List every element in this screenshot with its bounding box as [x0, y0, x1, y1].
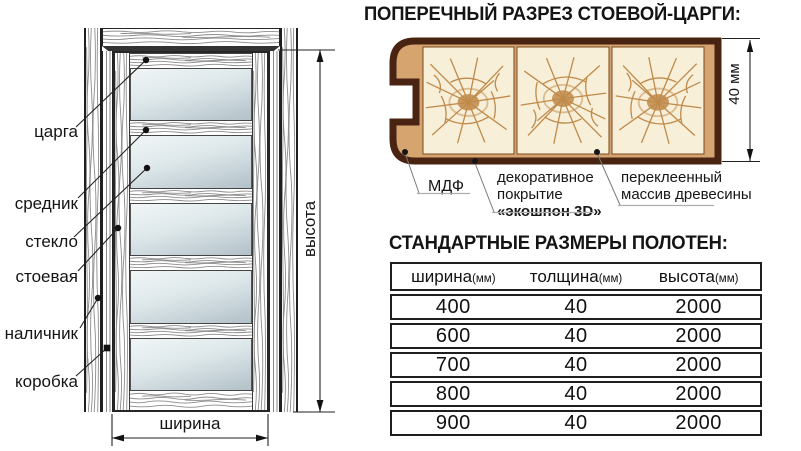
table-row: 800 40 2000 — [390, 381, 762, 407]
door-leaf — [113, 51, 269, 412]
table-row: 700 40 2000 — [390, 352, 762, 378]
infographic-canvas: царга средник стекло стоевая наличник ко… — [0, 0, 801, 451]
glued-wood-label: переклеенный массив древесины — [621, 169, 752, 203]
door-leaf-top-edge — [102, 46, 280, 51]
cross-section-drawing — [383, 36, 723, 166]
door-rail-top — [130, 53, 252, 69]
glass-panel — [130, 339, 252, 390]
door-casing-right — [280, 28, 298, 412]
cell-width: 900 — [392, 412, 515, 435]
cell-height: 2000 — [637, 325, 760, 348]
door-frame-right — [269, 51, 280, 412]
door-diagram — [84, 28, 298, 412]
thickness-dimension-label: 40 мм — [726, 44, 742, 124]
wood-grain-texture — [130, 189, 252, 203]
door-panel-stack — [130, 53, 252, 410]
coating-label: декоративное покрытие «экошпон 3D» — [497, 169, 602, 220]
table-header-row: ширина(мм) толщина(мм) высота(мм) — [390, 262, 762, 291]
door-stile-right — [252, 53, 267, 410]
cell-thickness: 40 — [515, 296, 638, 319]
cell-height: 2000 — [637, 354, 760, 377]
label-stoevaya: стоевая — [0, 268, 78, 286]
door-rail — [130, 323, 252, 339]
wood-grain-texture — [130, 54, 252, 68]
label-korobka: коробка — [0, 373, 78, 391]
cell-height: 2000 — [637, 383, 760, 406]
glued-wood-line1: переклеенный — [621, 169, 752, 186]
label-steklo: стекло — [0, 233, 78, 251]
wood-grain-texture — [253, 53, 267, 410]
cell-width: 400 — [392, 296, 515, 319]
wood-grain-texture — [130, 121, 252, 135]
height-dimension-label: высота — [300, 159, 318, 299]
sizes-table-title: СТАНДАРТНЫЕ РАЗМЕРЫ ПОЛОТЕН: — [389, 233, 728, 255]
sizes-table: ширина(мм) толщина(мм) высота(мм) 400 40… — [390, 262, 762, 436]
glass-panel — [130, 136, 252, 187]
cell-width: 700 — [392, 354, 515, 377]
wood-grain-texture — [115, 53, 129, 410]
coating-label-line2: покрытие — [497, 186, 602, 203]
column-header-thickness: толщина(мм) — [515, 267, 638, 287]
wood-grain-texture — [130, 324, 252, 338]
mdf-label: МДФ — [428, 178, 464, 195]
door-rail-bottom — [130, 390, 252, 410]
wood-grain-texture — [282, 28, 296, 412]
glass-panel — [130, 271, 252, 322]
table-row: 400 40 2000 — [390, 294, 762, 320]
width-dimension-arrows — [112, 435, 268, 442]
cell-thickness: 40 — [515, 354, 638, 377]
cell-width: 800 — [392, 383, 515, 406]
cell-width: 600 — [392, 325, 515, 348]
thickness-dimension-arrows — [747, 40, 753, 161]
door-stile-left — [115, 53, 130, 410]
glass-panel — [130, 69, 252, 120]
door-rail — [130, 255, 252, 271]
glass-panel — [130, 204, 252, 255]
door-rail — [130, 188, 252, 204]
label-tsarga: царга — [0, 123, 78, 141]
door-lower — [102, 51, 280, 412]
wood-grain-texture — [130, 256, 252, 270]
column-header-height: высота(мм) — [637, 267, 760, 287]
width-dimension-label: ширина — [120, 414, 260, 434]
label-nalichnik: наличник — [0, 325, 78, 343]
column-header-width: ширина(мм) — [392, 267, 515, 287]
cross-section-title: ПОПЕРЕЧНЫЙ РАЗРЕЗ СТОЕВОЙ-ЦАРГИ: — [364, 4, 741, 26]
table-row: 600 40 2000 — [390, 323, 762, 349]
coating-label-line3: «экошпон 3D» — [497, 203, 602, 220]
cell-height: 2000 — [637, 412, 760, 435]
wood-end-grain-panels — [423, 47, 704, 154]
door-frame-left — [102, 51, 113, 412]
cell-height: 2000 — [637, 296, 760, 319]
cell-thickness: 40 — [515, 383, 638, 406]
coating-label-line1: декоративное — [497, 169, 602, 186]
wood-grain-texture — [130, 391, 252, 410]
door-middle — [102, 28, 280, 412]
cell-thickness: 40 — [515, 412, 638, 435]
door-frame-header — [102, 28, 280, 46]
door-rail — [130, 120, 252, 136]
cell-thickness: 40 — [515, 325, 638, 348]
table-row: 900 40 2000 — [390, 410, 762, 436]
wood-grain-texture — [86, 28, 100, 412]
glued-wood-line2: массив древесины — [621, 186, 752, 203]
door-casing-left — [84, 28, 102, 412]
label-srednik: средник — [0, 195, 78, 213]
wood-grain-texture — [103, 29, 279, 46]
